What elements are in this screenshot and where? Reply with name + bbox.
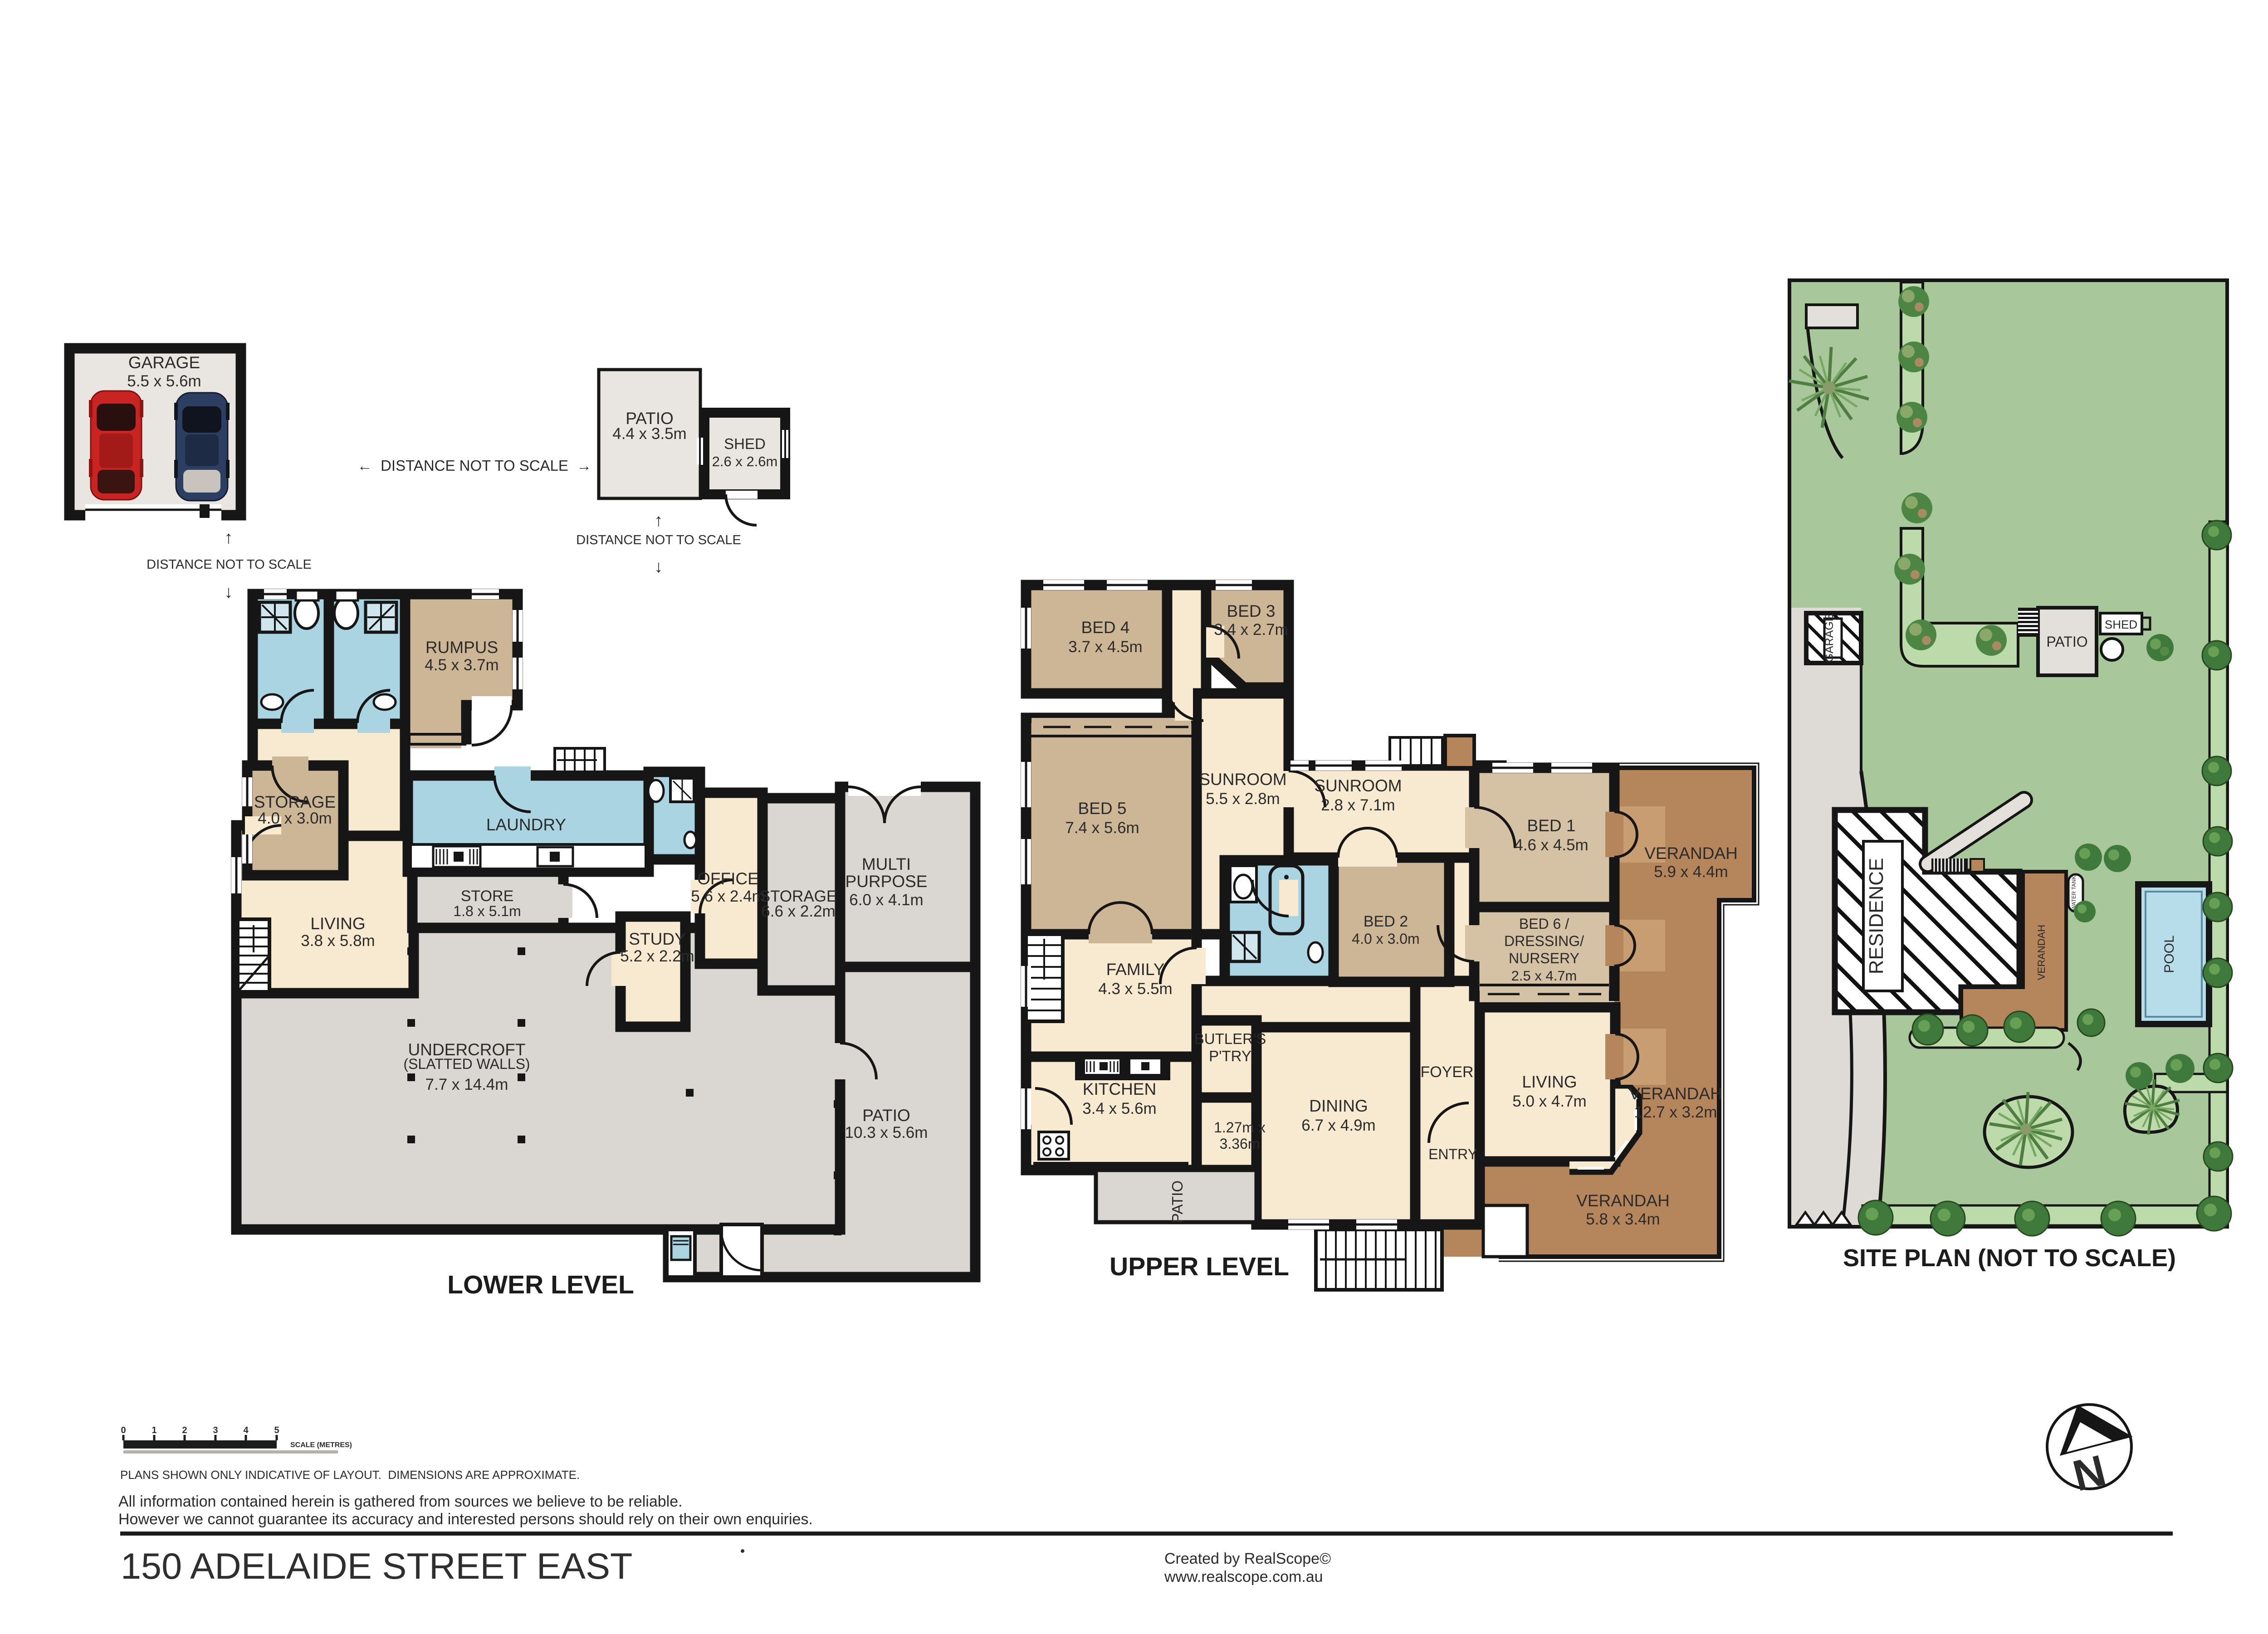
svg-text:5.2 x 2.2m: 5.2 x 2.2m xyxy=(620,947,694,965)
svg-text:5.5 x 2.8m: 5.5 x 2.8m xyxy=(1206,790,1280,808)
svg-text:6.6 x 2.2m: 6.6 x 2.2m xyxy=(761,902,835,920)
svg-text:VERANDAH: VERANDAH xyxy=(1576,1191,1670,1210)
svg-text:2.8 x 7.1m: 2.8 x 7.1m xyxy=(1321,796,1395,814)
svg-text:2.5 x 4.7m: 2.5 x 4.7m xyxy=(1511,968,1577,984)
svg-text:LOWER LEVEL: LOWER LEVEL xyxy=(447,1270,634,1299)
svg-text:OFFICE: OFFICE xyxy=(697,869,759,888)
svg-text:SUNROOM: SUNROOM xyxy=(1314,776,1402,795)
svg-text:www.realscope.com.au: www.realscope.com.au xyxy=(1164,1568,1323,1585)
svg-text:10.3 x 5.6m: 10.3 x 5.6m xyxy=(845,1124,928,1141)
svg-text:5: 5 xyxy=(274,1425,279,1435)
svg-text:LIVING: LIVING xyxy=(310,914,365,933)
svg-text:BED 2: BED 2 xyxy=(1364,913,1408,930)
svg-text:2.6 x 2.6m: 2.6 x 2.6m xyxy=(712,454,778,469)
svg-text:VERANDAH: VERANDAH xyxy=(1644,844,1738,863)
svg-text:DINING: DINING xyxy=(1309,1097,1368,1115)
svg-text:4.5 x 3.7m: 4.5 x 3.7m xyxy=(425,656,499,674)
svg-text:DISTANCE NOT TO SCALE: DISTANCE NOT TO SCALE xyxy=(576,533,741,547)
svg-text:↑: ↑ xyxy=(225,528,233,547)
svg-text:5.0 x 4.7m: 5.0 x 4.7m xyxy=(1512,1093,1586,1110)
svg-text:1.27m x: 1.27m x xyxy=(1214,1119,1266,1136)
svg-text:NURSERY: NURSERY xyxy=(1509,950,1579,966)
svg-text:FAMILY: FAMILY xyxy=(1106,960,1165,979)
svg-text:POOL: POOL xyxy=(2162,935,2177,973)
svg-text:7.7 x 14.4m: 7.7 x 14.4m xyxy=(425,1076,508,1093)
svg-text:PLANS SHOWN ONLY INDICATIVE OF: PLANS SHOWN ONLY INDICATIVE OF LAYOUT. D… xyxy=(120,1468,580,1482)
svg-text:↑: ↑ xyxy=(655,511,663,530)
svg-text:3.4 x 2.7m: 3.4 x 2.7m xyxy=(1214,621,1288,639)
svg-text:DRESSING/: DRESSING/ xyxy=(1504,933,1584,949)
svg-text:← DISTANCE NOT TO SCALE →: ← DISTANCE NOT TO SCALE → xyxy=(357,457,592,474)
svg-text:RUMPUS: RUMPUS xyxy=(425,638,498,657)
svg-text:(SLATTED WALLS): (SLATTED WALLS) xyxy=(403,1056,530,1072)
svg-text:SHED: SHED xyxy=(724,435,766,452)
svg-text:VERANDAH: VERANDAH xyxy=(2036,925,2047,980)
svg-text:STUDY: STUDY xyxy=(629,930,685,948)
svg-text:UPPER LEVEL: UPPER LEVEL xyxy=(1110,1252,1289,1281)
svg-text:BUTLER'S: BUTLER'S xyxy=(1194,1030,1266,1047)
svg-text:All information contained here: All information contained herein is gath… xyxy=(118,1493,683,1510)
svg-text:5.8 x 3.4m: 5.8 x 3.4m xyxy=(1586,1210,1660,1228)
svg-text:1: 1 xyxy=(152,1425,156,1435)
svg-text:0: 0 xyxy=(121,1425,126,1435)
svg-text:BED 4: BED 4 xyxy=(1081,618,1130,637)
svg-text:ENTRY: ENTRY xyxy=(1428,1146,1477,1162)
svg-text:4.4 x 3.5m: 4.4 x 3.5m xyxy=(612,425,686,443)
svg-text:4.0 x 3.0m: 4.0 x 3.0m xyxy=(258,810,332,827)
svg-text:5.5 x 5.6m: 5.5 x 5.6m xyxy=(127,372,201,390)
svg-text:150 ADELAIDE STREET EAST: 150 ADELAIDE STREET EAST xyxy=(121,1546,632,1587)
svg-text:4.0 x 3.0m: 4.0 x 3.0m xyxy=(1352,931,1419,947)
svg-text:PATIO: PATIO xyxy=(862,1106,910,1125)
svg-text:BED 1: BED 1 xyxy=(1527,816,1576,835)
svg-text:GARAGE: GARAGE xyxy=(128,353,200,372)
svg-text:BED 6 /: BED 6 / xyxy=(1519,916,1569,932)
svg-text:VERANDAH: VERANDAH xyxy=(1629,1084,1722,1103)
svg-text:SCALE (METRES): SCALE (METRES) xyxy=(290,1441,352,1449)
svg-text:RESIDENCE: RESIDENCE xyxy=(1865,858,1887,975)
svg-text:1.8 x 5.1m: 1.8 x 5.1m xyxy=(453,903,521,919)
svg-text:PATIO: PATIO xyxy=(2046,634,2087,650)
svg-text:3.4 x 5.6m: 3.4 x 5.6m xyxy=(1082,1100,1156,1117)
svg-text:FOYER: FOYER xyxy=(1420,1063,1473,1081)
svg-text:SHED: SHED xyxy=(2105,618,2137,631)
svg-text:P'TRY: P'TRY xyxy=(1209,1048,1251,1064)
svg-text:SUNROOM: SUNROOM xyxy=(1199,770,1286,789)
svg-text:However we cannot guarantee it: However we cannot guarantee its accuracy… xyxy=(118,1511,813,1528)
svg-text:↓: ↓ xyxy=(225,583,233,602)
svg-text:PATIO: PATIO xyxy=(1169,1180,1186,1223)
svg-text:3.8 x 5.8m: 3.8 x 5.8m xyxy=(301,932,375,950)
svg-text:3.36m: 3.36m xyxy=(1220,1136,1260,1152)
svg-text:STORE: STORE xyxy=(461,888,514,905)
svg-text:MULTI: MULTI xyxy=(862,855,911,873)
svg-text:6.0 x 4.1m: 6.0 x 4.1m xyxy=(849,891,923,909)
svg-text:DISTANCE NOT TO SCALE: DISTANCE NOT TO SCALE xyxy=(147,557,312,572)
svg-text:PURPOSE: PURPOSE xyxy=(846,872,928,891)
svg-text:7.4 x 5.6m: 7.4 x 5.6m xyxy=(1065,819,1139,837)
svg-text:KITCHEN: KITCHEN xyxy=(1083,1080,1156,1098)
svg-text:6.7 x 4.9m: 6.7 x 4.9m xyxy=(1301,1117,1375,1134)
svg-text:Created by RealScope©: Created by RealScope© xyxy=(1164,1550,1331,1567)
svg-text:BED 3: BED 3 xyxy=(1227,602,1276,620)
svg-text:4: 4 xyxy=(243,1425,249,1435)
svg-text:↓: ↓ xyxy=(655,557,663,576)
svg-text:LAUNDRY: LAUNDRY xyxy=(486,815,566,834)
svg-text:LIVING: LIVING xyxy=(1522,1073,1577,1091)
svg-text:4.6 x 4.5m: 4.6 x 4.5m xyxy=(1514,836,1588,854)
svg-text:2: 2 xyxy=(182,1425,187,1435)
svg-text:BED 5: BED 5 xyxy=(1078,799,1127,818)
svg-text:4.3 x 5.5m: 4.3 x 5.5m xyxy=(1098,980,1172,998)
svg-text:3: 3 xyxy=(213,1425,218,1435)
svg-text:5.6 x 2.4m: 5.6 x 2.4m xyxy=(691,888,765,905)
svg-text:SITE PLAN (NOT TO SCALE): SITE PLAN (NOT TO SCALE) xyxy=(1843,1244,2176,1272)
svg-text:12.7 x 3.2m: 12.7 x 3.2m xyxy=(1634,1103,1717,1121)
svg-text:GARAGE: GARAGE xyxy=(1823,614,1836,663)
svg-text:STORAGE: STORAGE xyxy=(254,793,336,811)
svg-text:3.7 x 4.5m: 3.7 x 4.5m xyxy=(1068,638,1142,656)
svg-text:5.9 x 4.4m: 5.9 x 4.4m xyxy=(1654,863,1728,881)
